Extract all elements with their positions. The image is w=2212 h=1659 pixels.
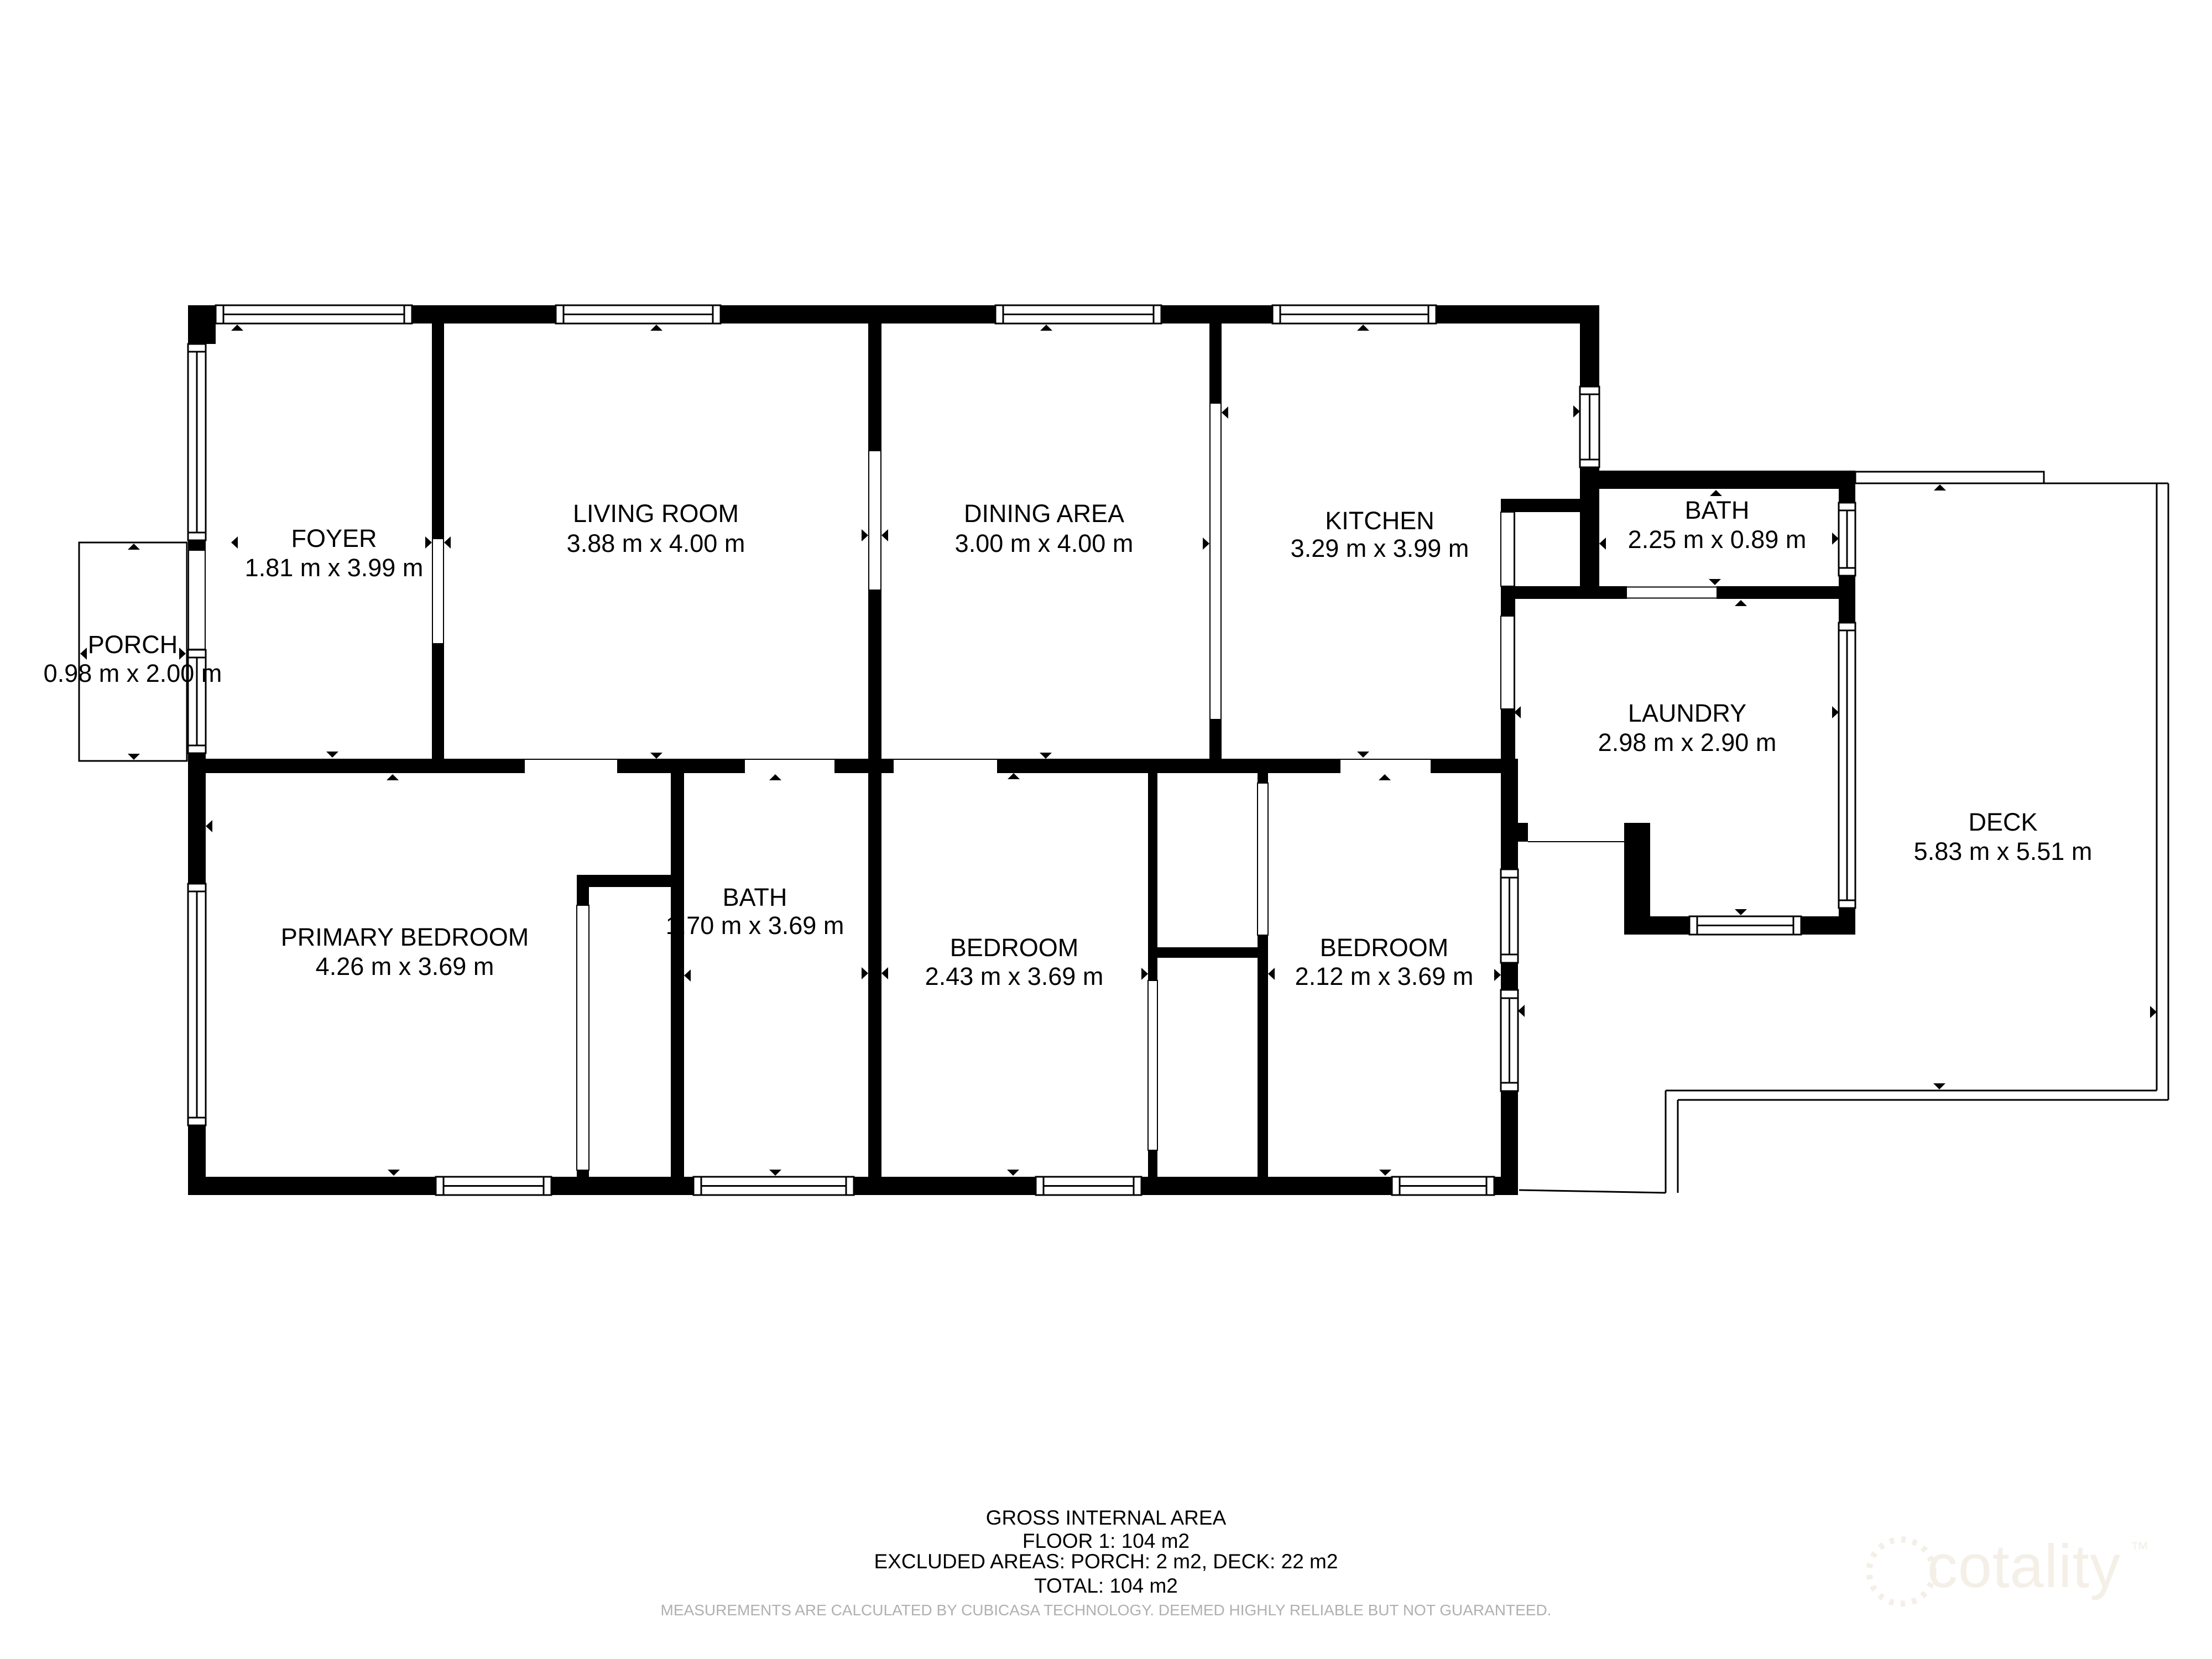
svg-text:FOYER: FOYER <box>291 524 377 552</box>
svg-text:DECK: DECK <box>1968 808 2037 836</box>
svg-text:3.00 m x 4.00 m: 3.00 m x 4.00 m <box>955 529 1134 557</box>
svg-text:MEASUREMENTS ARE CALCULATED BY: MEASUREMENTS ARE CALCULATED BY CUBICASA … <box>661 1601 1552 1619</box>
svg-text:DINING AREA: DINING AREA <box>964 499 1124 528</box>
svg-text:4.26 m x 3.69 m: 4.26 m x 3.69 m <box>316 952 494 980</box>
svg-text:cotality: cotality <box>1927 1532 2121 1600</box>
svg-text:PRIMARY BEDROOM: PRIMARY BEDROOM <box>281 923 529 951</box>
svg-text:LIVING ROOM: LIVING ROOM <box>573 499 739 528</box>
svg-text:0.98 m x 2.00 m: 0.98 m x 2.00 m <box>44 659 222 687</box>
svg-text:FLOOR 1: 104 m2: FLOOR 1: 104 m2 <box>1022 1530 1190 1552</box>
svg-text:5.83 m x 5.51 m: 5.83 m x 5.51 m <box>1914 837 2093 865</box>
svg-text:™: ™ <box>2130 1538 2149 1559</box>
svg-text:1.81 m x 3.99 m: 1.81 m x 3.99 m <box>245 554 424 582</box>
svg-text:PORCH: PORCH <box>88 630 178 659</box>
svg-text:2.43 m x 3.69 m: 2.43 m x 3.69 m <box>925 962 1104 990</box>
svg-text:BATH: BATH <box>723 883 787 911</box>
svg-text:KITCHEN: KITCHEN <box>1325 507 1434 535</box>
svg-text:2.98 m x 2.90 m: 2.98 m x 2.90 m <box>1598 728 1777 757</box>
svg-text:GROSS INTERNAL AREA: GROSS INTERNAL AREA <box>986 1506 1227 1529</box>
svg-text:3.29 m x 3.99 m: 3.29 m x 3.99 m <box>1291 534 1469 562</box>
svg-text:LAUNDRY: LAUNDRY <box>1628 699 1746 727</box>
svg-text:EXCLUDED AREAS: PORCH: 2 m2, D: EXCLUDED AREAS: PORCH: 2 m2, DECK: 22 m2 <box>874 1550 1338 1573</box>
svg-text:1.70 m x 3.69 m: 1.70 m x 3.69 m <box>666 911 844 940</box>
svg-text:2.25 m x 0.89 m: 2.25 m x 0.89 m <box>1628 525 1807 554</box>
svg-text:3.88 m x 4.00 m: 3.88 m x 4.00 m <box>567 529 745 557</box>
svg-text:BEDROOM: BEDROOM <box>1320 933 1449 962</box>
svg-text:TOTAL: 104 m2: TOTAL: 104 m2 <box>1034 1574 1178 1597</box>
svg-text:2.12 m x 3.69 m: 2.12 m x 3.69 m <box>1295 962 1474 990</box>
svg-text:BATH: BATH <box>1685 496 1750 524</box>
svg-text:BEDROOM: BEDROOM <box>950 933 1079 962</box>
